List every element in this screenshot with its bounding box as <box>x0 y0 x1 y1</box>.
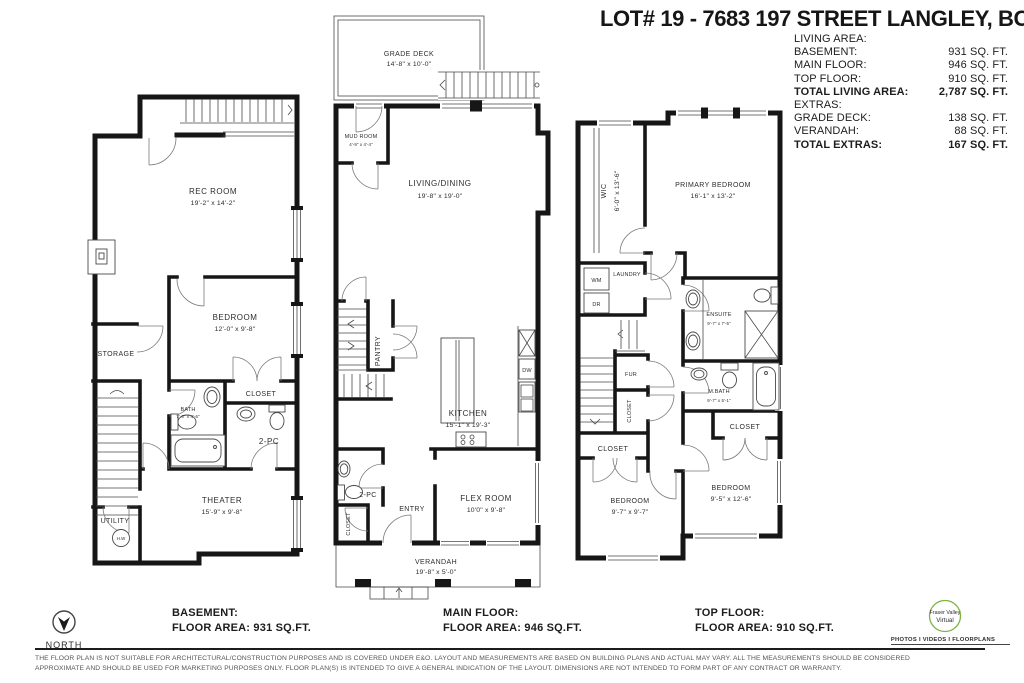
logo-tagline: PHOTOS I VIDEOS I FLOORPLANS <box>891 637 995 643</box>
top-floorplan: WIC 6'-0" x 13'-6" PRIMARY BEDROOM 16'-1… <box>573 103 788 568</box>
floorplan-page: { "header": { "title": "LOT# 19 - 7683 1… <box>0 0 1024 683</box>
row-label: GRADE DECK: <box>794 112 871 125</box>
rec-room-label: REC ROOM <box>189 187 237 196</box>
ensuite-dims: 9'-7" x 7'-5" <box>707 321 731 326</box>
table-row: TOP FLOOR:910 SQ. FT. <box>794 73 1008 86</box>
row-label: TOTAL LIVING AREA: <box>794 86 908 99</box>
floor-name: MAIN FLOOR: <box>443 606 582 621</box>
main-windows <box>354 101 543 548</box>
fur-label: FUR <box>625 372 637 378</box>
row-value: 946 SQ. FT. <box>948 59 1008 72</box>
basement-left-stairs <box>96 391 138 516</box>
closet-label: CLOSET <box>246 391 277 398</box>
basement-floor-label: BASEMENT: FLOOR AREA: 931 SQ.FT. <box>172 606 311 636</box>
fraser-valley-virtual-logo: Fraser Valley Virtual PHOTOS I VIDEOS I … <box>885 596 1013 646</box>
primary-bedroom-label: PRIMARY BEDROOM <box>675 182 751 189</box>
pantry-label: PANTRY <box>375 336 382 366</box>
main-doors <box>342 106 417 531</box>
row-value: 88 SQ. FT. <box>954 125 1008 138</box>
top-floor-label: TOP FLOOR: FLOOR AREA: 910 SQ.FT. <box>695 606 834 636</box>
living-dining-dims: 19'-8" x 19'-0" <box>418 193 463 200</box>
top-doors <box>593 228 767 499</box>
living-dining-label: LIVING/DINING <box>409 179 472 188</box>
table-row: VERANDAH:88 SQ. FT. <box>794 125 1008 138</box>
kitchen-label: KITCHEN <box>449 409 488 418</box>
top-labels: WIC 6'-0" x 13'-6" PRIMARY BEDROOM 16'-1… <box>591 170 760 516</box>
floor-area: FLOOR AREA: 931 SQ.FT. <box>172 621 311 636</box>
row-label: TOP FLOOR: <box>794 73 861 86</box>
main-walls <box>336 106 548 543</box>
table-row: BASEMENT:931 SQ. FT. <box>794 46 1008 59</box>
basement-labels: REC ROOM 19'-2" x 14'-2" BEDROOM 12'-0" … <box>98 187 280 525</box>
powder-toilet <box>269 405 285 412</box>
bedroom-right-dims: 9'-5" x 12'-6" <box>711 496 752 503</box>
main-floor-label: MAIN FLOOR: FLOOR AREA: 946 SQ.FT. <box>443 606 582 636</box>
row-value: 167 SQ. FT. <box>948 139 1008 152</box>
mbath-label: M.BATH <box>708 389 730 395</box>
front-door <box>382 515 412 548</box>
basement-floorplan: H.W REC ROOM 19'-2" x 14'-2" BEDROOM 12'… <box>85 94 320 581</box>
wic-dims: 6'-0" x 13'-6" <box>614 170 621 211</box>
mud-room-label: MUD ROOM <box>345 134 378 140</box>
two-pc-label: 2-PC <box>359 492 377 499</box>
laundry-label: LAUNDRY <box>613 272 641 278</box>
logo-underline <box>891 644 1010 645</box>
bath-dims: 7'-6" x 4'-6" <box>176 414 200 419</box>
ensuite-toilet <box>771 287 778 304</box>
wic-label: WIC <box>601 184 608 199</box>
closet-right-label: CLOSET <box>730 424 761 431</box>
table-row: EXTRAS: <box>794 99 1008 112</box>
main-labels: GRADE DECK 14'-8" x 10'-0" MUD ROOM 4'-9… <box>345 51 533 576</box>
mbath-toilet <box>721 363 738 370</box>
flex-room-label: FLEX ROOM <box>460 494 512 503</box>
dr-label: DR <box>592 302 600 308</box>
page-title: LOT# 19 - 7683 197 STREET LANGLEY, BC <box>600 6 1008 32</box>
kitchen-dims: 15'-1" x 19'-3" <box>446 422 491 429</box>
closet-label: CLOSET <box>346 512 352 536</box>
table-row-total-living: TOTAL LIVING AREA:2,787 SQ. FT. <box>794 86 1008 99</box>
two-pc-label: 2-PC <box>259 437 279 446</box>
logo-circle-icon <box>930 601 961 632</box>
closet-left-label: CLOSET <box>598 446 629 453</box>
logo-line1: Fraser Valley <box>930 610 961 616</box>
floor-name: BASEMENT: <box>172 606 311 621</box>
north-indicator: NORTH <box>38 604 98 652</box>
basement-top-stairs <box>180 99 294 136</box>
wm-label: WM <box>591 278 601 284</box>
row-label: LIVING AREA: <box>794 33 867 46</box>
hw-label: H.W <box>117 536 127 541</box>
bedroom-label: BEDROOM <box>213 313 258 322</box>
basement-walls <box>93 97 297 563</box>
closet-mid-label: CLOSET <box>627 399 633 423</box>
powder-toilet <box>338 485 345 500</box>
bedroom-left-label: BEDROOM <box>611 498 650 505</box>
theater-dims: 15'-9" x 9'-8" <box>202 509 243 516</box>
living-area-table: LIVING AREA: BASEMENT:931 SQ. FT. MAIN F… <box>794 33 1008 152</box>
table-row: MAIN FLOOR:946 SQ. FT. <box>794 59 1008 72</box>
north-arrow-icon <box>58 617 70 631</box>
disclaimer-line-2: APPROXIMATE AND SHOULD BE USED FOR MARKE… <box>35 664 987 674</box>
mud-room-dims: 4'-9" x 4'-4" <box>349 142 373 147</box>
row-value: 2,787 SQ. FT. <box>939 86 1008 99</box>
row-label: TOTAL EXTRAS: <box>794 139 882 152</box>
logo-line2: Virtual <box>936 617 953 624</box>
rec-room-dims: 19'-2" x 14'-2" <box>191 200 236 207</box>
disclaimer: THE FLOOR PLAN IS NOT SUITABLE FOR ARCHI… <box>35 654 987 673</box>
floor-area: FLOOR AREA: 910 SQ.FT. <box>695 621 834 636</box>
mbath-dims: 9'-7" x 5'-1" <box>707 398 731 403</box>
table-row: LIVING AREA: <box>794 33 1008 46</box>
footer-separator <box>35 648 985 650</box>
dw-label: DW <box>522 368 532 374</box>
row-value: 931 SQ. FT. <box>948 46 1008 59</box>
exterior-stairs <box>438 70 542 100</box>
primary-bedroom-dims: 16'-1" x 13'-2" <box>691 193 736 200</box>
row-label: EXTRAS: <box>794 99 842 112</box>
entry-label: ENTRY <box>399 506 425 513</box>
flex-room-dims: 10'0" x 9'-8" <box>467 507 506 514</box>
row-label: BASEMENT: <box>794 46 857 59</box>
range-stove <box>456 432 486 447</box>
main-floorplan: GRADE DECK 14'-8" x 10'-0" MUD ROOM 4'-9… <box>328 8 573 600</box>
row-value: 910 SQ. FT. <box>948 73 1008 86</box>
storage-label: STORAGE <box>98 351 135 358</box>
table-row: GRADE DECK:138 SQ. FT. <box>794 112 1008 125</box>
verandah-dims: 19'-8" x 5'-0" <box>416 569 457 576</box>
ensuite-label: ENSUITE <box>706 312 731 318</box>
floor-area: FLOOR AREA: 946 SQ.FT. <box>443 621 582 636</box>
disclaimer-line-1: THE FLOOR PLAN IS NOT SUITABLE FOR ARCHI… <box>35 654 987 664</box>
floor-name: TOP FLOOR: <box>695 606 834 621</box>
grade-deck-dims: 14'-8" x 10'-0" <box>387 61 432 68</box>
verandah-label: VERANDAH <box>415 559 457 566</box>
bath-label: BATH <box>180 407 195 413</box>
grade-deck-label: GRADE DECK <box>384 51 434 58</box>
row-value: 138 SQ. FT. <box>948 112 1008 125</box>
bedroom-right-label: BEDROOM <box>712 485 751 492</box>
row-label: MAIN FLOOR: <box>794 59 867 72</box>
theater-label: THEATER <box>202 496 242 505</box>
utility-label: UTILITY <box>101 518 130 525</box>
table-row-total-extras: TOTAL EXTRAS:167 SQ. FT. <box>794 139 1008 152</box>
row-label: VERANDAH: <box>794 125 859 138</box>
bedroom-left-dims: 9'-7" x 9'-7" <box>612 509 649 516</box>
basement-doors <box>103 138 281 533</box>
bedroom-dims: 12'-0" x 9'-8" <box>215 326 256 333</box>
